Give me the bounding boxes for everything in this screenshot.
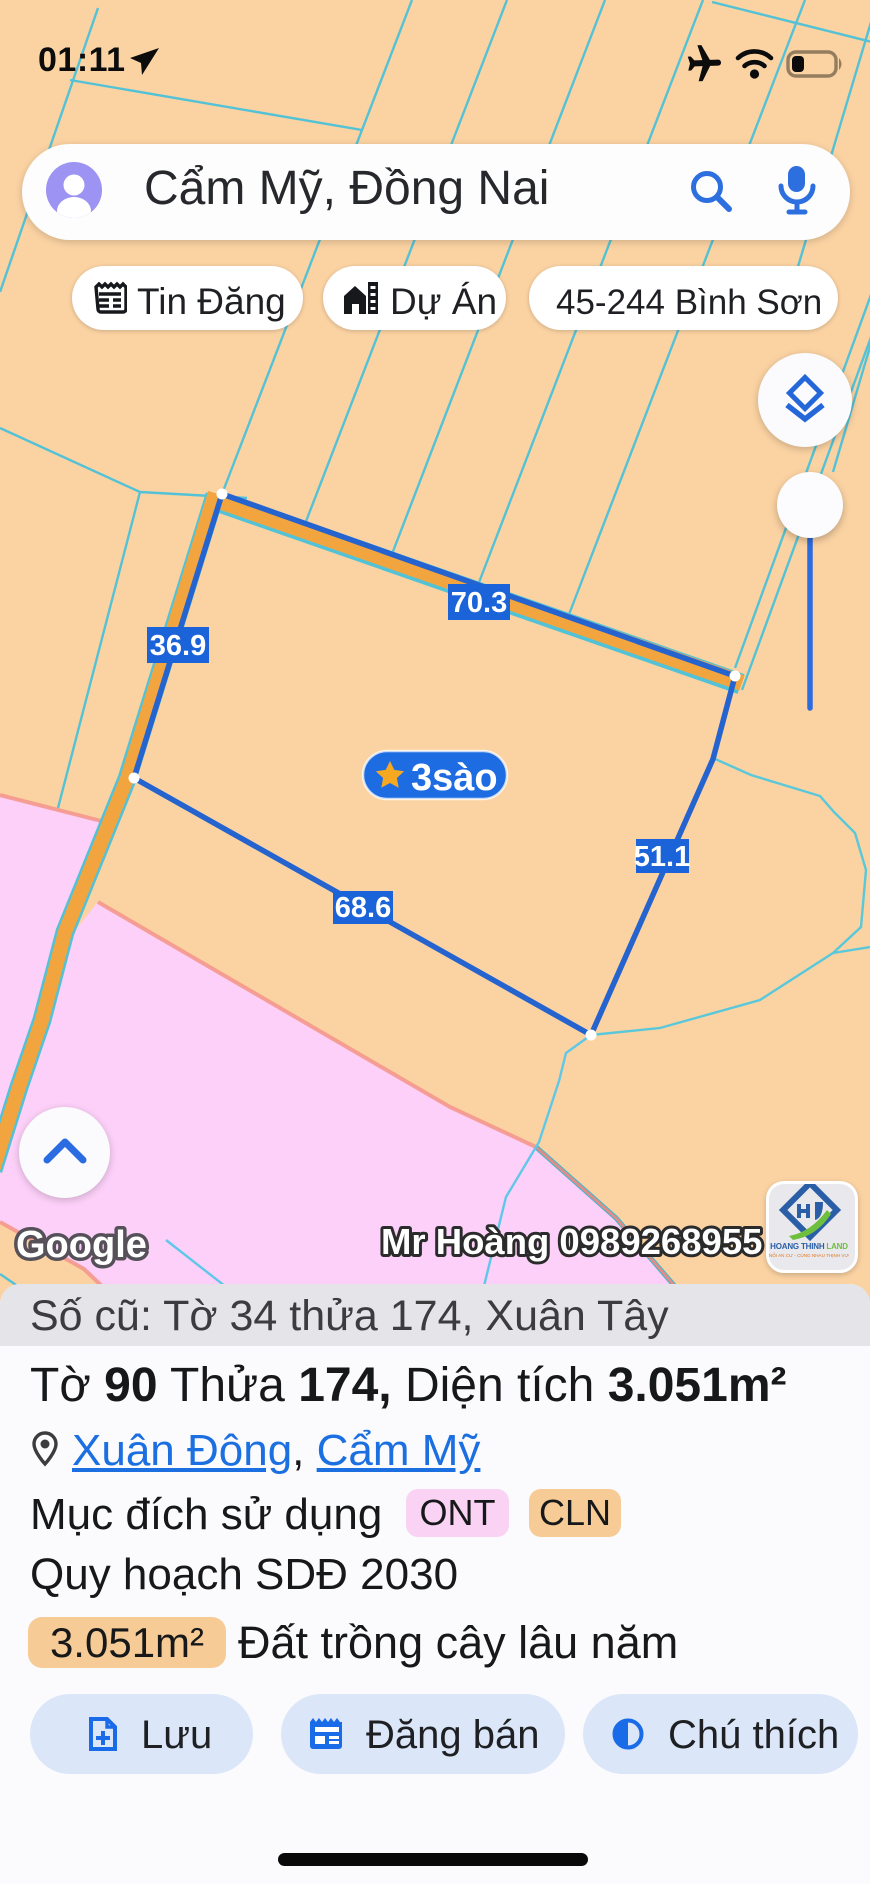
svg-text:HOANG THINH LAND: HOANG THINH LAND [770,1242,848,1251]
svg-text:51.1: 51.1 [634,841,690,873]
svg-text:KẾT NỐI AN CƯ - CÙNG NHAU THỊN: KẾT NỐI AN CƯ - CÙNG NHAU THỊNH VƯỢNG [769,1252,849,1258]
svg-text:68.6: 68.6 [335,892,391,924]
svg-text:Mr Hoàng 0989268955: Mr Hoàng 0989268955 [381,1221,762,1262]
svg-text:3sào: 3sào [411,757,498,799]
svg-text:70.3: 70.3 [451,587,507,619]
svg-text:36.9: 36.9 [150,630,206,662]
svg-text:Google: Google [16,1224,147,1266]
